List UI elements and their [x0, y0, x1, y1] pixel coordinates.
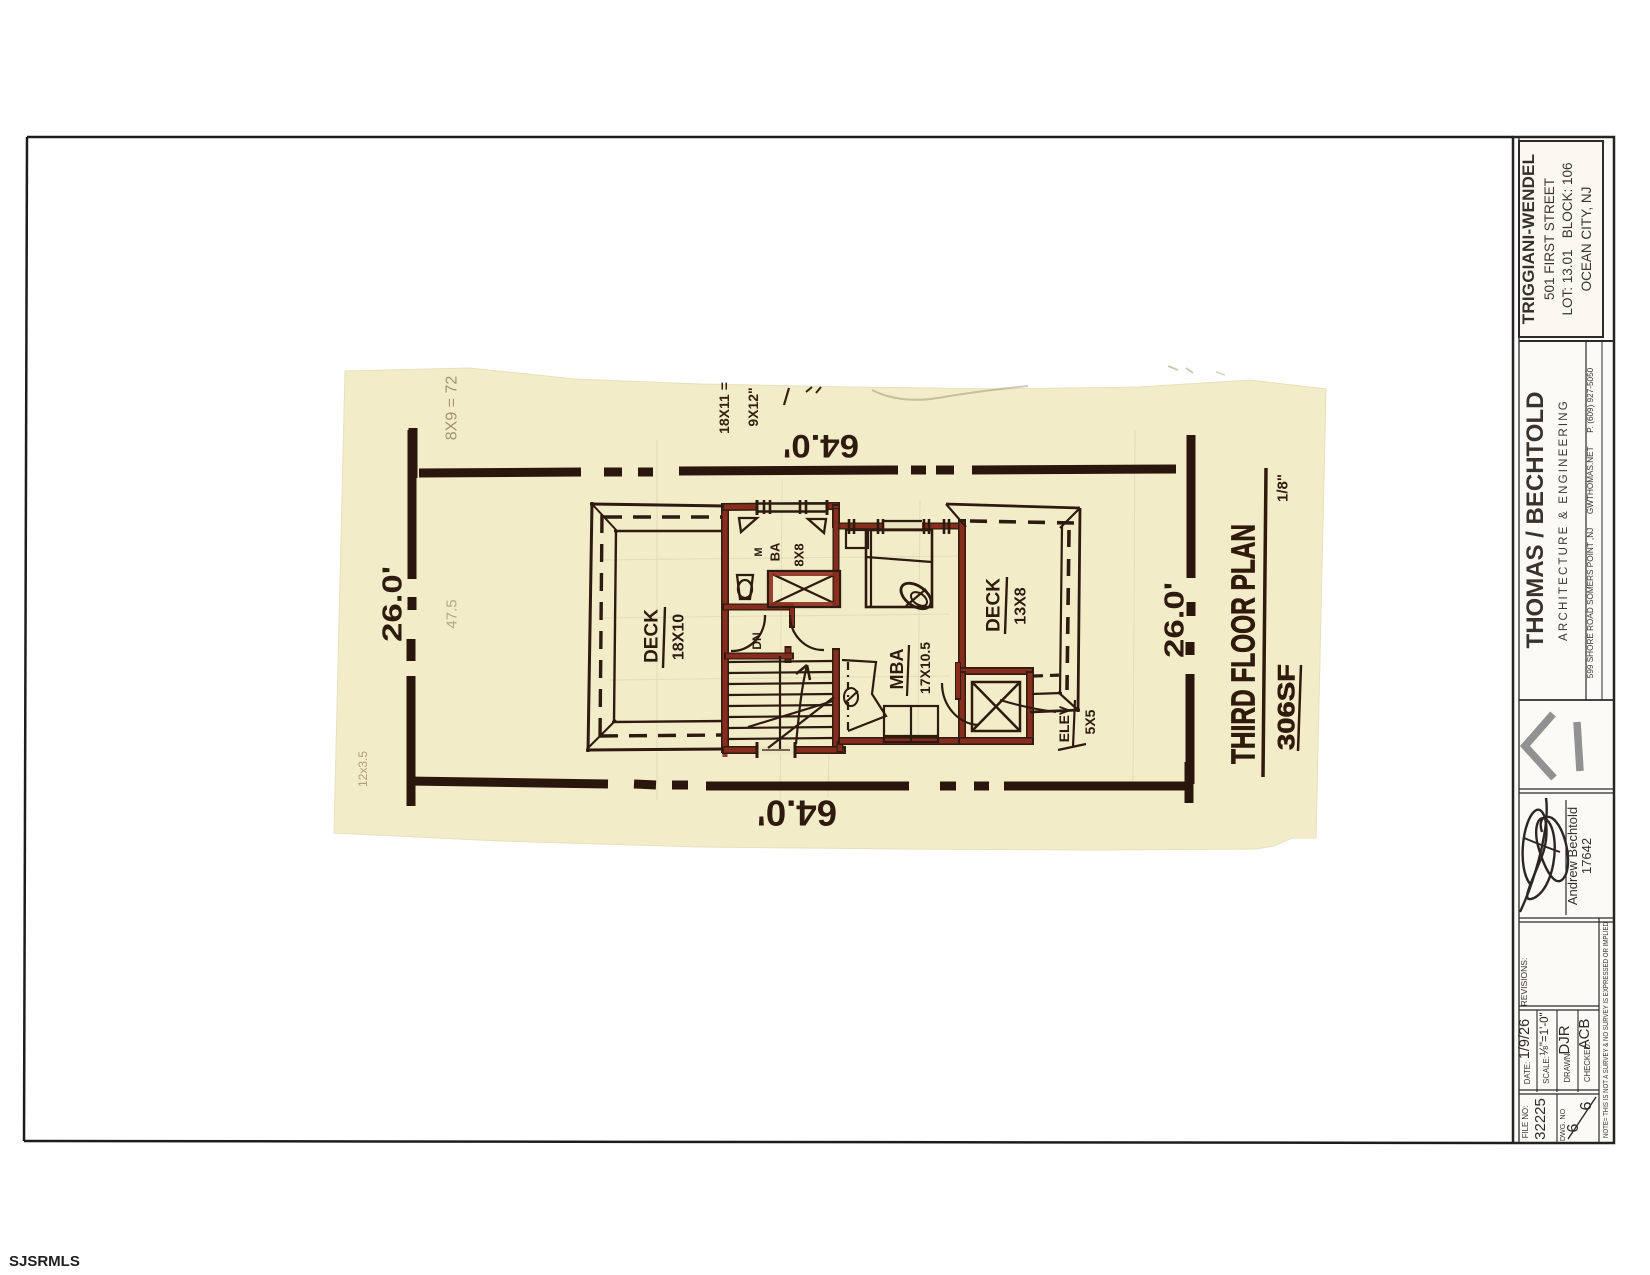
svg-text:DATE:: DATE:	[1523, 1062, 1532, 1084]
svg-text:8X9 = 72: 8X9 = 72	[444, 376, 461, 441]
svg-text:32225: 32225	[1532, 1098, 1549, 1140]
svg-text:13X8: 13X8	[1013, 587, 1030, 624]
svg-text:501 FIRST STREET: 501 FIRST STREET	[1542, 178, 1557, 300]
svg-text:DN: DN	[750, 632, 764, 649]
svg-text:DRAWN:: DRAWN:	[1563, 1051, 1572, 1082]
svg-text:DJR: DJR	[1556, 1025, 1573, 1054]
svg-text:17X10.5: 17X10.5	[917, 642, 933, 694]
svg-text:47.5: 47.5	[444, 599, 461, 628]
svg-text:ACB: ACB	[1576, 1019, 1593, 1050]
svg-text:64.0': 64.0'	[757, 793, 837, 834]
svg-text:FILE NO:: FILE NO:	[1521, 1106, 1530, 1139]
svg-text:26.0': 26.0'	[1159, 582, 1190, 658]
svg-text:5X5: 5X5	[1082, 709, 1098, 734]
svg-text:BA: BA	[768, 542, 783, 561]
svg-text:NOTE= THIS IS NOT A SURVEY & N: NOTE= THIS IS NOT A SURVEY & NO SURVEY I…	[1601, 922, 1610, 1138]
svg-text:DECK: DECK	[984, 578, 1005, 632]
svg-text:26.0': 26.0'	[377, 566, 408, 642]
svg-text:SCALE:: SCALE:	[1542, 1056, 1551, 1084]
svg-text:12x3.5: 12x3.5	[356, 751, 370, 787]
svg-text:599 SHORE ROAD SOMERS POINT ,N: 599 SHORE ROAD SOMERS POINT ,NJ GWTHOMAS…	[1586, 367, 1595, 678]
svg-text:306SF: 306SF	[1274, 664, 1301, 750]
svg-text:18X10: 18X10	[671, 614, 688, 660]
svg-text:MBA: MBA	[887, 649, 907, 690]
svg-text:TRIGGIANI-WENDEL: TRIGGIANI-WENDEL	[1519, 154, 1538, 324]
svg-text:9X12": 9X12"	[745, 387, 761, 426]
svg-text:64.0': 64.0'	[783, 428, 859, 464]
svg-text:ELEV: ELEV	[1056, 705, 1072, 742]
svg-text:REVISIONS:: REVISIONS:	[1519, 958, 1529, 1007]
svg-text:M: M	[753, 547, 765, 556]
svg-text:⅛"=1'-0": ⅛"=1'-0"	[1539, 1012, 1551, 1055]
svg-text:OCEAN CITY, NJ: OCEAN CITY, NJ	[1579, 187, 1594, 292]
svg-text:18X11 =: 18X11 =	[716, 382, 732, 434]
svg-text:8X8: 8X8	[792, 543, 807, 566]
svg-text:1/9/26: 1/9/26	[1517, 1019, 1533, 1059]
svg-text:17642: 17642	[1579, 838, 1594, 874]
svg-text:LOT: 13.01 BLOCK: 106: LOT: 13.01 BLOCK: 106	[1560, 162, 1575, 315]
svg-text:THOMAS / BECHTOLD: THOMAS / BECHTOLD	[1522, 392, 1549, 649]
svg-text:Andrew Bechtold: Andrew Bechtold	[1565, 807, 1580, 905]
svg-text:1/8": 1/8"	[1275, 474, 1292, 502]
svg-text:SJSRMLS: SJSRMLS	[9, 1253, 80, 1270]
svg-text:DECK: DECK	[642, 609, 663, 663]
svg-text:ARCHITECTURE & ENGINEERING: ARCHITECTURE & ENGINEERING	[1558, 399, 1570, 641]
svg-text:THIRD FLOOR PLAN: THIRD FLOOR PLAN	[1225, 524, 1262, 764]
